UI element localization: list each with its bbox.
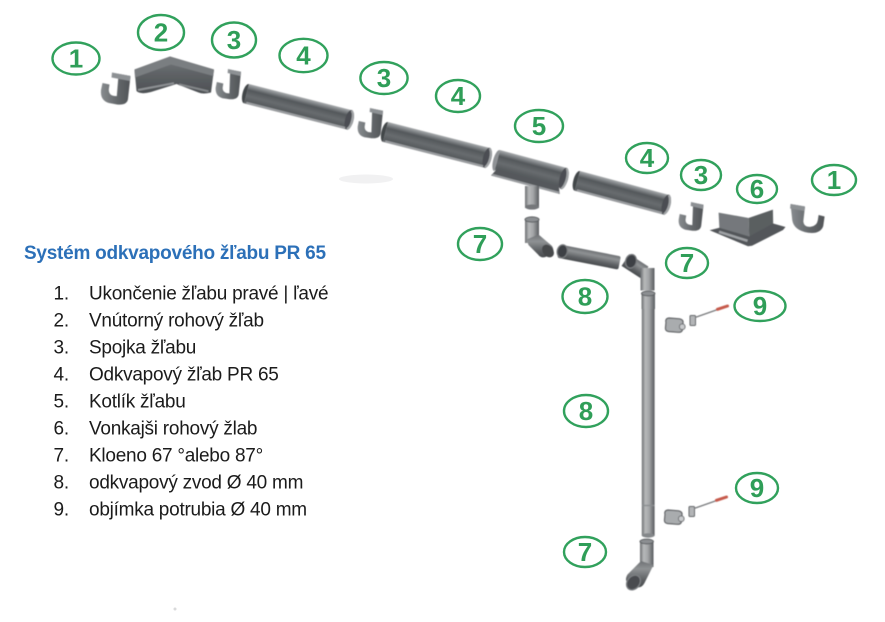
svg-text:9: 9 (753, 291, 767, 321)
svg-text:Vnútorný rohový žľab: Vnútorný rohový žľab (89, 311, 264, 332)
svg-text:Spojka žľabu: Spojka žľabu (89, 338, 196, 359)
svg-text:8: 8 (578, 282, 592, 312)
svg-text:7: 7 (473, 229, 487, 259)
svg-text:4.: 4. (54, 365, 69, 386)
svg-text:9.: 9. (54, 500, 69, 521)
svg-text:Kotlík žľabu: Kotlík žľabu (89, 392, 186, 413)
svg-text:Vonkajši rohový žlab: Vonkajši rohový žlab (89, 419, 257, 440)
svg-text:Kloeno 67 °alebo 87°: Kloeno 67 °alebo 87° (89, 446, 263, 467)
svg-text:2.: 2. (54, 311, 69, 332)
svg-text:1: 1 (69, 44, 83, 74)
svg-text:8: 8 (579, 396, 593, 426)
svg-text:3: 3 (377, 63, 391, 93)
svg-text:5.: 5. (54, 392, 69, 413)
svg-text:Systém odkvapového žľabu PR 65: Systém odkvapového žľabu PR 65 (24, 243, 326, 264)
svg-text:8.: 8. (54, 473, 69, 494)
svg-text:3: 3 (694, 160, 708, 190)
svg-text:6: 6 (750, 174, 764, 204)
svg-text:7.: 7. (54, 446, 69, 467)
svg-text:objímka potrubia Ø 40 mm: objímka potrubia Ø 40 mm (89, 500, 307, 521)
svg-text:odkvapový zvod Ø 40 mm: odkvapový zvod Ø 40 mm (89, 473, 303, 494)
svg-text:4: 4 (296, 41, 311, 71)
svg-text:3.: 3. (54, 338, 69, 359)
svg-text:1.: 1. (54, 284, 69, 305)
svg-text:4: 4 (640, 143, 655, 173)
svg-text:7: 7 (578, 537, 592, 567)
svg-text:Ukončenie žľabu pravé | ľavé: Ukončenie žľabu pravé | ľavé (89, 284, 328, 305)
svg-text:Odkvapový žľab PR 65: Odkvapový žľab PR 65 (89, 365, 279, 386)
svg-text:7: 7 (680, 248, 694, 278)
svg-text:5: 5 (532, 111, 546, 141)
svg-text:3: 3 (227, 25, 241, 55)
svg-text:1: 1 (827, 165, 841, 195)
svg-text:4: 4 (451, 81, 466, 111)
svg-text:9: 9 (750, 473, 764, 503)
svg-text:6.: 6. (54, 419, 69, 440)
svg-text:2: 2 (154, 18, 168, 48)
